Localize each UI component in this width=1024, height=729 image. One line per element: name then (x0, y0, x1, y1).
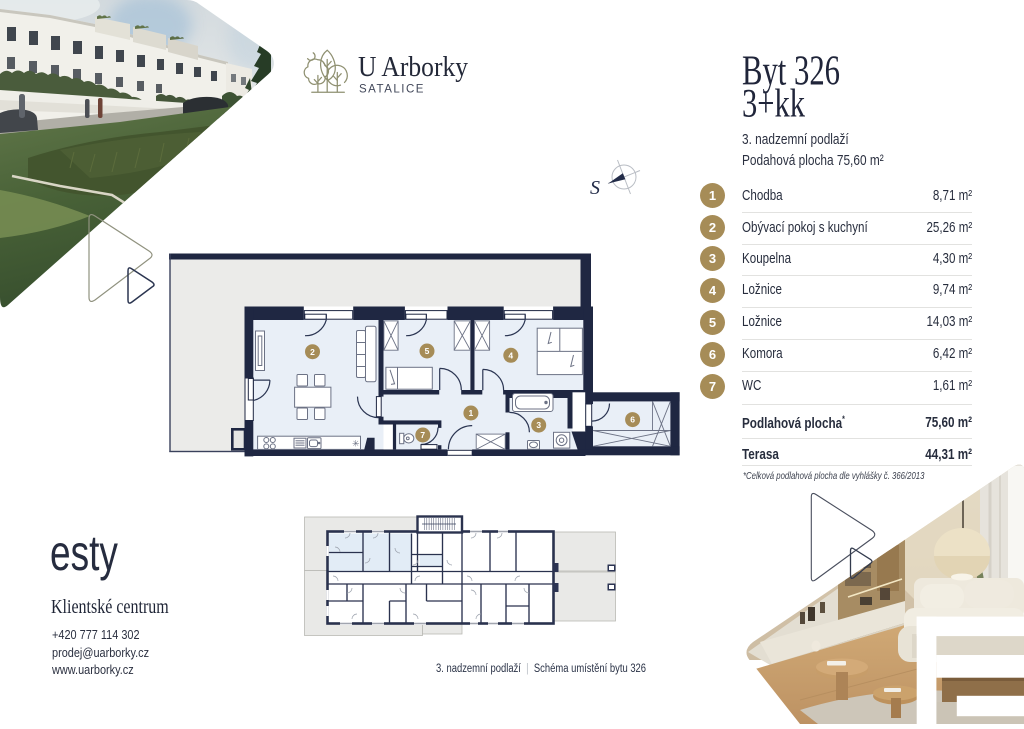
svg-text:4: 4 (508, 350, 513, 360)
svg-text:2: 2 (310, 347, 315, 357)
svg-text:SATALICE: SATALICE (359, 84, 425, 96)
svg-text:1: 1 (469, 408, 474, 418)
svg-text:6: 6 (630, 415, 635, 425)
svg-text:5: 5 (425, 346, 430, 356)
svg-text:3: 3 (536, 420, 541, 430)
svg-text:✳: ✳ (352, 439, 360, 449)
svg-text:3+kk: 3+kk (742, 81, 805, 126)
svg-text:7: 7 (420, 430, 425, 440)
svg-text:U Arborky: U Arborky (358, 52, 468, 83)
svg-text:S: S (590, 177, 600, 199)
